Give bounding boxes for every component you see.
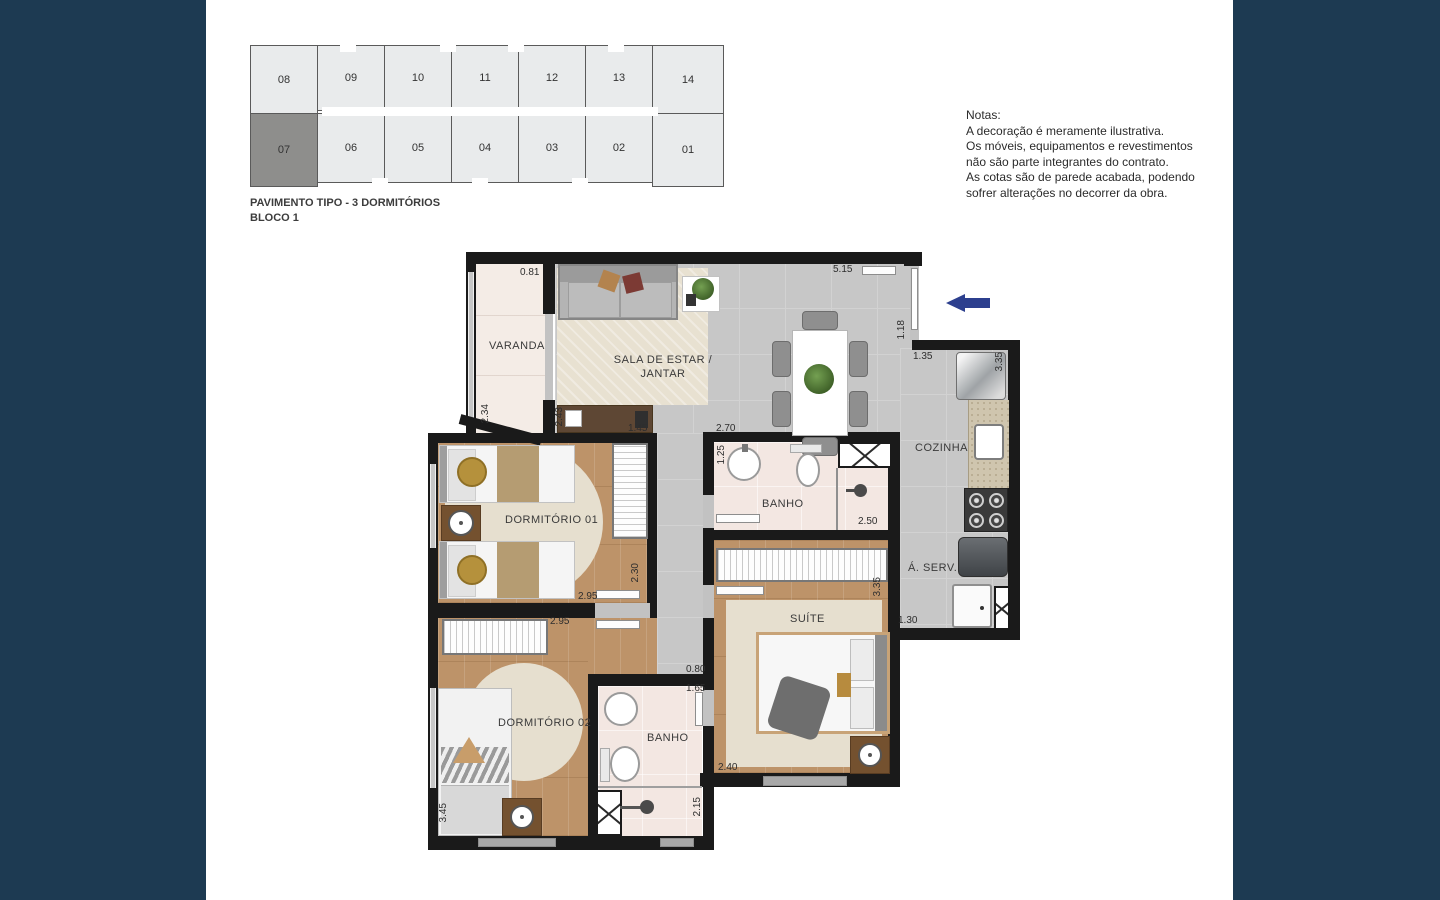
dim-banho1-right: 2.50 <box>858 516 877 527</box>
stove-burner <box>989 493 1004 508</box>
unit-label: 03 <box>546 142 558 154</box>
keyplan-corridor-gap <box>322 107 658 116</box>
varanda-window <box>468 272 474 418</box>
dining-table-plant <box>804 364 834 394</box>
dim-dorm2-top: 2.95 <box>550 616 569 627</box>
dim-cozinha-right: 3.35 <box>994 352 1005 371</box>
wall-banho1-bottom <box>703 530 900 540</box>
unit-label: 02 <box>613 142 625 154</box>
caption-line-2: BLOCO 1 <box>250 212 299 224</box>
keyplan-caption: PAVIMENTO TIPO - 3 DORMITÓRIOSBLOCO 1 <box>250 196 440 226</box>
keyplan-unit-06: 06 <box>317 113 385 183</box>
keyplan-unit-09: 09 <box>317 45 385 111</box>
dorm2-window <box>430 688 436 788</box>
keyplan-unit-07-highlighted: 07 <box>250 113 318 187</box>
banho2-toilet <box>610 746 640 782</box>
banho1-sink <box>727 447 761 481</box>
suite-threshold <box>763 776 847 786</box>
dorm1-wardrobe <box>612 443 648 539</box>
keyplan-notch <box>340 44 356 52</box>
dim-banho2-top: 1.65 <box>686 683 705 694</box>
dorm1-bed-2 <box>439 541 575 599</box>
bed-headboard <box>440 542 447 598</box>
dorm2-door-leaf <box>596 620 640 629</box>
suite-wardrobe <box>716 548 888 582</box>
keyplan-unit-13: 13 <box>585 45 653 111</box>
wall-top <box>466 252 922 264</box>
banho1-faucet <box>742 444 748 452</box>
notes-line: não são parte integrantes do contrato. <box>966 155 1226 171</box>
keyplan-top-row: 08 09 10 11 12 13 14 <box>250 45 723 115</box>
notes-line: sofrer alterações no decorrer da obra. <box>966 186 1226 202</box>
keyplan-unit-01: 01 <box>652 113 724 187</box>
dining-chair <box>772 391 791 427</box>
banho1-toilet-tank <box>790 444 822 453</box>
unit-label: 01 <box>682 144 694 156</box>
banho2-door-leaf <box>695 692 703 726</box>
varanda-sliding-door <box>545 314 553 400</box>
floorplan-page: 08 09 10 11 12 13 14 07 06 05 04 03 02 0… <box>0 0 1440 900</box>
banho1-door-leaf <box>716 514 760 523</box>
suite-gold-cushion <box>837 673 851 697</box>
room-label-dorm2: DORMITÓRIO 02 <box>498 717 591 729</box>
dorm1-clock <box>448 510 474 536</box>
dim-dorm2-left: 3.45 <box>438 803 449 822</box>
bed-blanket-tan <box>497 542 539 598</box>
unit-label: 05 <box>412 142 424 154</box>
stove <box>964 488 1008 532</box>
unit-label: 13 <box>613 72 625 84</box>
banho1-door-opening <box>703 495 714 528</box>
banho2-shower-head <box>640 800 654 814</box>
dining-chair <box>772 341 791 377</box>
unit-label: 06 <box>345 142 357 154</box>
suite-door-leaf <box>716 586 764 595</box>
entry-door-leaf <box>911 268 918 330</box>
banho2-shower-divider <box>598 786 702 788</box>
unit-label: 12 <box>546 72 558 84</box>
unit-label: 14 <box>682 74 694 86</box>
keyplan-unit-03: 03 <box>518 113 586 183</box>
dorm2-clock <box>510 805 534 829</box>
unit-label: 04 <box>479 142 491 154</box>
dim-aserv-bottom: 1.30 <box>898 615 917 626</box>
room-label-cozinha: COZINHA <box>915 442 968 454</box>
room-label-aserv: Á. SERV. <box>908 562 957 574</box>
unit-label: 11 <box>479 72 490 84</box>
banho1-shower-divider <box>836 468 838 530</box>
dining-chair <box>802 311 838 330</box>
unit-label: 09 <box>345 72 357 84</box>
keyplan-notch <box>440 44 456 52</box>
left-navy-bar <box>0 0 206 900</box>
unit-label: 08 <box>278 74 290 86</box>
notes-title: Notas: <box>966 108 1226 124</box>
dining-chair <box>849 391 868 427</box>
suite-throw <box>766 674 832 741</box>
desk-object <box>565 410 582 427</box>
suite-pillow <box>850 687 874 729</box>
dim-banho1-left: 1.25 <box>716 445 727 464</box>
sala-label-line2: JANTAR <box>641 368 686 380</box>
wall-cozinha-top <box>912 340 1020 350</box>
sala-label-line1: SALA DE ESTAR / <box>614 354 712 366</box>
keyplan-notch <box>472 178 488 187</box>
notes-line: Os móveis, equipamentos e revestimentos <box>966 139 1226 155</box>
notes-line: A decoração é meramente ilustrativa. <box>966 124 1226 140</box>
keyplan-unit-14: 14 <box>652 45 724 115</box>
stove-burner <box>969 493 984 508</box>
room-label-banho1: BANHO <box>762 498 804 510</box>
bed-blanket-tan <box>497 446 539 502</box>
room-label-sala: SALA DE ESTAR / JANTAR <box>593 353 733 381</box>
bed-headboard <box>440 446 447 502</box>
suite-door-opening <box>703 585 714 618</box>
dim-banho1-top: 2.70 <box>716 423 735 434</box>
unit-label: 10 <box>412 72 424 84</box>
bed-round-cushion <box>457 457 487 487</box>
banho2-toilet-tank <box>600 748 610 782</box>
dim-varanda-left: 2.34 <box>480 404 491 423</box>
dorm2-wardrobe <box>442 619 548 655</box>
dorm1-door-leaf <box>596 590 640 599</box>
laundry-tank <box>952 584 992 628</box>
wall-dorm1-right <box>647 433 657 613</box>
sofa <box>558 264 678 320</box>
wall-dorm1-top <box>428 433 657 443</box>
wall-entry-corner <box>904 252 922 266</box>
banho2-shaft <box>596 790 622 836</box>
suite-pillow <box>850 639 874 681</box>
dim-dorm1-bottom: 2.95 <box>578 591 597 602</box>
keyplan-notch <box>508 44 524 52</box>
dorm1-bed-1 <box>439 445 575 503</box>
room-label-suite: SUÍTE <box>790 613 825 625</box>
banho2-door-opening <box>703 690 714 726</box>
suite-bed <box>756 632 890 734</box>
side-table-frame <box>686 294 696 306</box>
stove-burner <box>989 513 1004 528</box>
dim-entry: 1.18 <box>896 320 907 339</box>
suite-clock <box>858 743 882 767</box>
notes-block: Notas: A decoração é meramente ilustrati… <box>966 108 1226 201</box>
keyplan-unit-04: 04 <box>451 113 519 183</box>
keyplan-unit-10: 10 <box>384 45 452 111</box>
keyplan-bottom-row: 07 06 05 04 03 02 01 <box>250 113 723 187</box>
keyplan-notch <box>372 178 388 187</box>
hall-floor <box>657 433 703 676</box>
dorm2-bed <box>438 688 512 836</box>
banho1-shaft <box>838 442 892 468</box>
keyplan-unit-05: 05 <box>384 113 452 183</box>
keyplan-unit-11: 11 <box>451 45 519 111</box>
keyplan-unit-08: 08 <box>250 45 318 115</box>
unit-label: 07 <box>278 144 290 156</box>
dorm2-tan-fold <box>453 737 485 763</box>
room-label-varanda: VARANDA <box>489 340 545 352</box>
right-navy-bar <box>1233 0 1440 900</box>
dining-chair <box>849 341 868 377</box>
dorm1-window <box>430 464 436 548</box>
tank-drain <box>980 606 984 610</box>
dim-banho2-right: 2.15 <box>692 797 703 816</box>
dim-sala-top: 5.15 <box>833 264 852 275</box>
sala-top-door-glyph <box>862 266 896 275</box>
entry-arrow-icon <box>946 294 965 312</box>
dorm-doors-opening <box>595 603 650 618</box>
entry-arrow-shaft <box>964 298 990 308</box>
caption-line-1: PAVIMENTO TIPO - 3 DORMITÓRIOS <box>250 197 440 209</box>
dorm2-duvet-gray <box>441 785 509 834</box>
dim-hall-top: 0.80 <box>686 664 705 675</box>
keyplan-notch <box>572 178 588 187</box>
suite-headboard <box>875 635 887 731</box>
dim-cozinha-top: 1.35 <box>913 351 932 362</box>
aserv-shaft <box>994 586 1010 630</box>
dim-suite-right: 3.35 <box>872 577 883 596</box>
keyplan-unit-02: 02 <box>585 113 653 183</box>
banho1-toilet <box>796 453 820 487</box>
room-label-banho2: BANHO <box>647 732 689 744</box>
notes-line: As cotas são de parede acabada, podendo <box>966 170 1226 186</box>
dim-varanda-top: 0.81 <box>520 267 539 278</box>
keyplan-unit-12: 12 <box>518 45 586 111</box>
room-label-dorm1: DORMITÓRIO 01 <box>505 514 598 526</box>
banho2-sink <box>604 692 638 726</box>
washer <box>958 537 1008 577</box>
banho1-shower-head <box>854 484 867 497</box>
keyplan-notch <box>608 44 624 52</box>
kitchen-sink <box>974 424 1004 460</box>
dim-dorm1-right: 2.30 <box>630 563 641 582</box>
dim-suite-bottom: 2.40 <box>718 762 737 773</box>
stove-burner <box>969 513 984 528</box>
bottom-threshold-1 <box>478 838 556 847</box>
dim-desk-bottom: 1.45 <box>628 423 647 434</box>
wall-varanda-divider-top <box>543 262 555 314</box>
dim-desk-left: 2.43 <box>554 407 565 426</box>
bottom-threshold-2 <box>660 838 694 847</box>
bed-round-cushion <box>457 555 487 585</box>
